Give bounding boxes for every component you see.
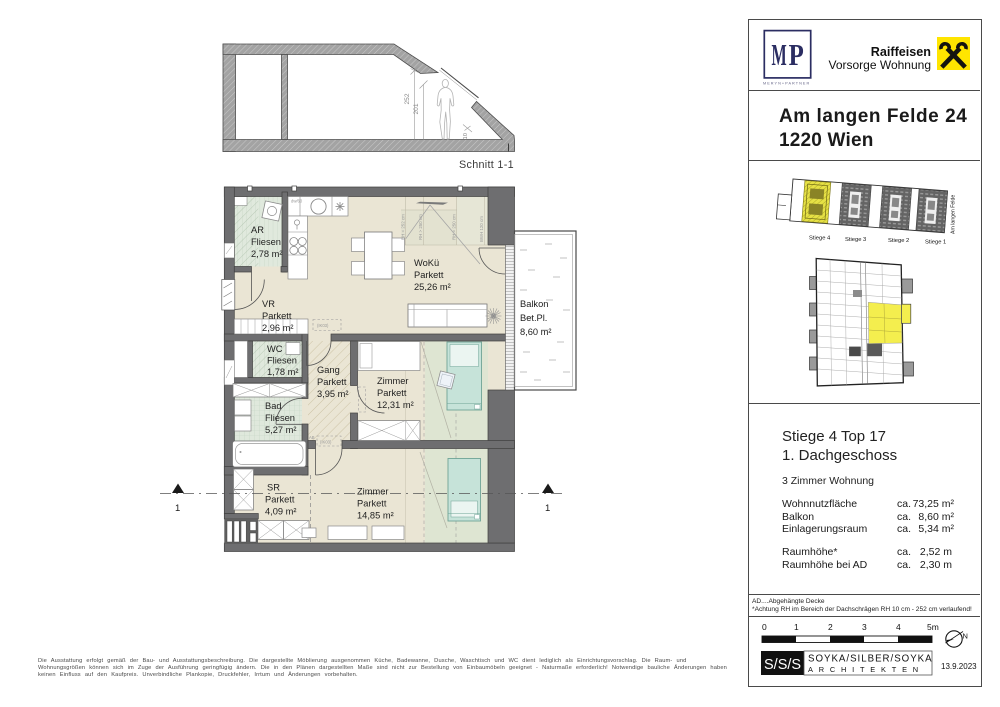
svg-text:ARCHITEKTEN: ARCHITEKTEN bbox=[808, 665, 924, 674]
svg-text:1: 1 bbox=[794, 622, 799, 632]
svg-text:WoKü: WoKü bbox=[414, 258, 439, 268]
svg-text:Parkett: Parkett bbox=[317, 377, 347, 387]
svg-text:WC: WC bbox=[267, 344, 283, 354]
svg-text:Balkon: Balkon bbox=[520, 299, 548, 309]
svg-text:2,96 m²: 2,96 m² bbox=[262, 323, 294, 333]
svg-text:N: N bbox=[963, 632, 968, 641]
svg-text:13.9.2023: 13.9.2023 bbox=[941, 662, 977, 671]
svg-text:Fliesen: Fliesen bbox=[251, 237, 281, 247]
svg-text:25,26 m²: 25,26 m² bbox=[414, 282, 451, 292]
svg-text:10: 10 bbox=[463, 133, 469, 139]
svg-text:1: 1 bbox=[545, 503, 550, 514]
svg-text:2,78 m²: 2,78 m² bbox=[251, 249, 283, 259]
svg-text:4,09 m²: 4,09 m² bbox=[265, 507, 297, 517]
svg-text:VR: VR bbox=[262, 299, 275, 309]
svg-text:RH < 252 cm: RH < 252 cm bbox=[401, 214, 406, 240]
svg-text:Stiege 2: Stiege 2 bbox=[888, 238, 909, 244]
svg-text:(IK03): (IK03) bbox=[320, 440, 332, 445]
svg-text:Parkett: Parkett bbox=[377, 388, 407, 398]
svg-text:RH > 250 cm: RH > 250 cm bbox=[418, 214, 423, 240]
svg-text:Stiege 3: Stiege 3 bbox=[845, 237, 866, 243]
svg-text:BWH 120 cm: BWH 120 cm bbox=[479, 216, 484, 242]
svg-text:Parkett: Parkett bbox=[414, 270, 444, 280]
svg-text:5m: 5m bbox=[927, 622, 939, 632]
svg-text:Parkett: Parkett bbox=[357, 499, 387, 509]
svg-text:Schnitt 1-1: Schnitt 1-1 bbox=[459, 159, 514, 171]
svg-text:1: 1 bbox=[175, 503, 180, 514]
svg-text:AB: AB bbox=[309, 435, 315, 440]
svg-text:Gang: Gang bbox=[317, 365, 340, 375]
svg-text:8,60 m²: 8,60 m² bbox=[520, 327, 552, 337]
svg-text:RH > 250 cm: RH > 250 cm bbox=[451, 214, 456, 240]
svg-text:Parkett: Parkett bbox=[265, 495, 295, 505]
svg-text:Zimmer: Zimmer bbox=[377, 376, 409, 386]
svg-text:MERYN+PARTNER: MERYN+PARTNER bbox=[763, 82, 810, 86]
svg-text:Am langen Felde: Am langen Felde bbox=[951, 195, 957, 234]
svg-text:Stiege 1: Stiege 1 bbox=[925, 240, 946, 246]
svg-text:AR: AR bbox=[251, 225, 264, 235]
svg-text:201: 201 bbox=[413, 103, 420, 114]
svg-text:S/S/S: S/S/S bbox=[764, 657, 801, 673]
svg-text:(IK03): (IK03) bbox=[317, 323, 329, 328]
svg-text:2: 2 bbox=[828, 622, 833, 632]
svg-text:0: 0 bbox=[762, 622, 767, 632]
svg-text:Fliesen: Fliesen bbox=[267, 356, 297, 366]
svg-text:3: 3 bbox=[862, 622, 867, 632]
svg-text:Parkett: Parkett bbox=[262, 311, 292, 321]
svg-text:4: 4 bbox=[896, 622, 901, 632]
svg-text:12,31 m²: 12,31 m² bbox=[377, 400, 414, 410]
svg-text:14,85 m²: 14,85 m² bbox=[357, 511, 394, 521]
svg-text:Zimmer: Zimmer bbox=[357, 487, 389, 497]
svg-text:Fliesen: Fliesen bbox=[265, 413, 295, 423]
svg-text:Stiege 4: Stiege 4 bbox=[809, 236, 831, 242]
svg-text:1,78 m²: 1,78 m² bbox=[267, 367, 299, 377]
svg-text:SR: SR bbox=[267, 483, 280, 493]
svg-text:SOYKA/SILBER/SOYKA: SOYKA/SILBER/SOYKA bbox=[808, 654, 933, 665]
svg-text:dw/60: dw/60 bbox=[291, 199, 303, 204]
svg-text:5,27 m²: 5,27 m² bbox=[265, 425, 297, 435]
svg-text:Bad: Bad bbox=[265, 401, 282, 411]
svg-text:3,95 m²: 3,95 m² bbox=[317, 389, 349, 399]
svg-text:Bet.Pl.: Bet.Pl. bbox=[520, 313, 547, 323]
svg-text:252: 252 bbox=[404, 93, 411, 104]
